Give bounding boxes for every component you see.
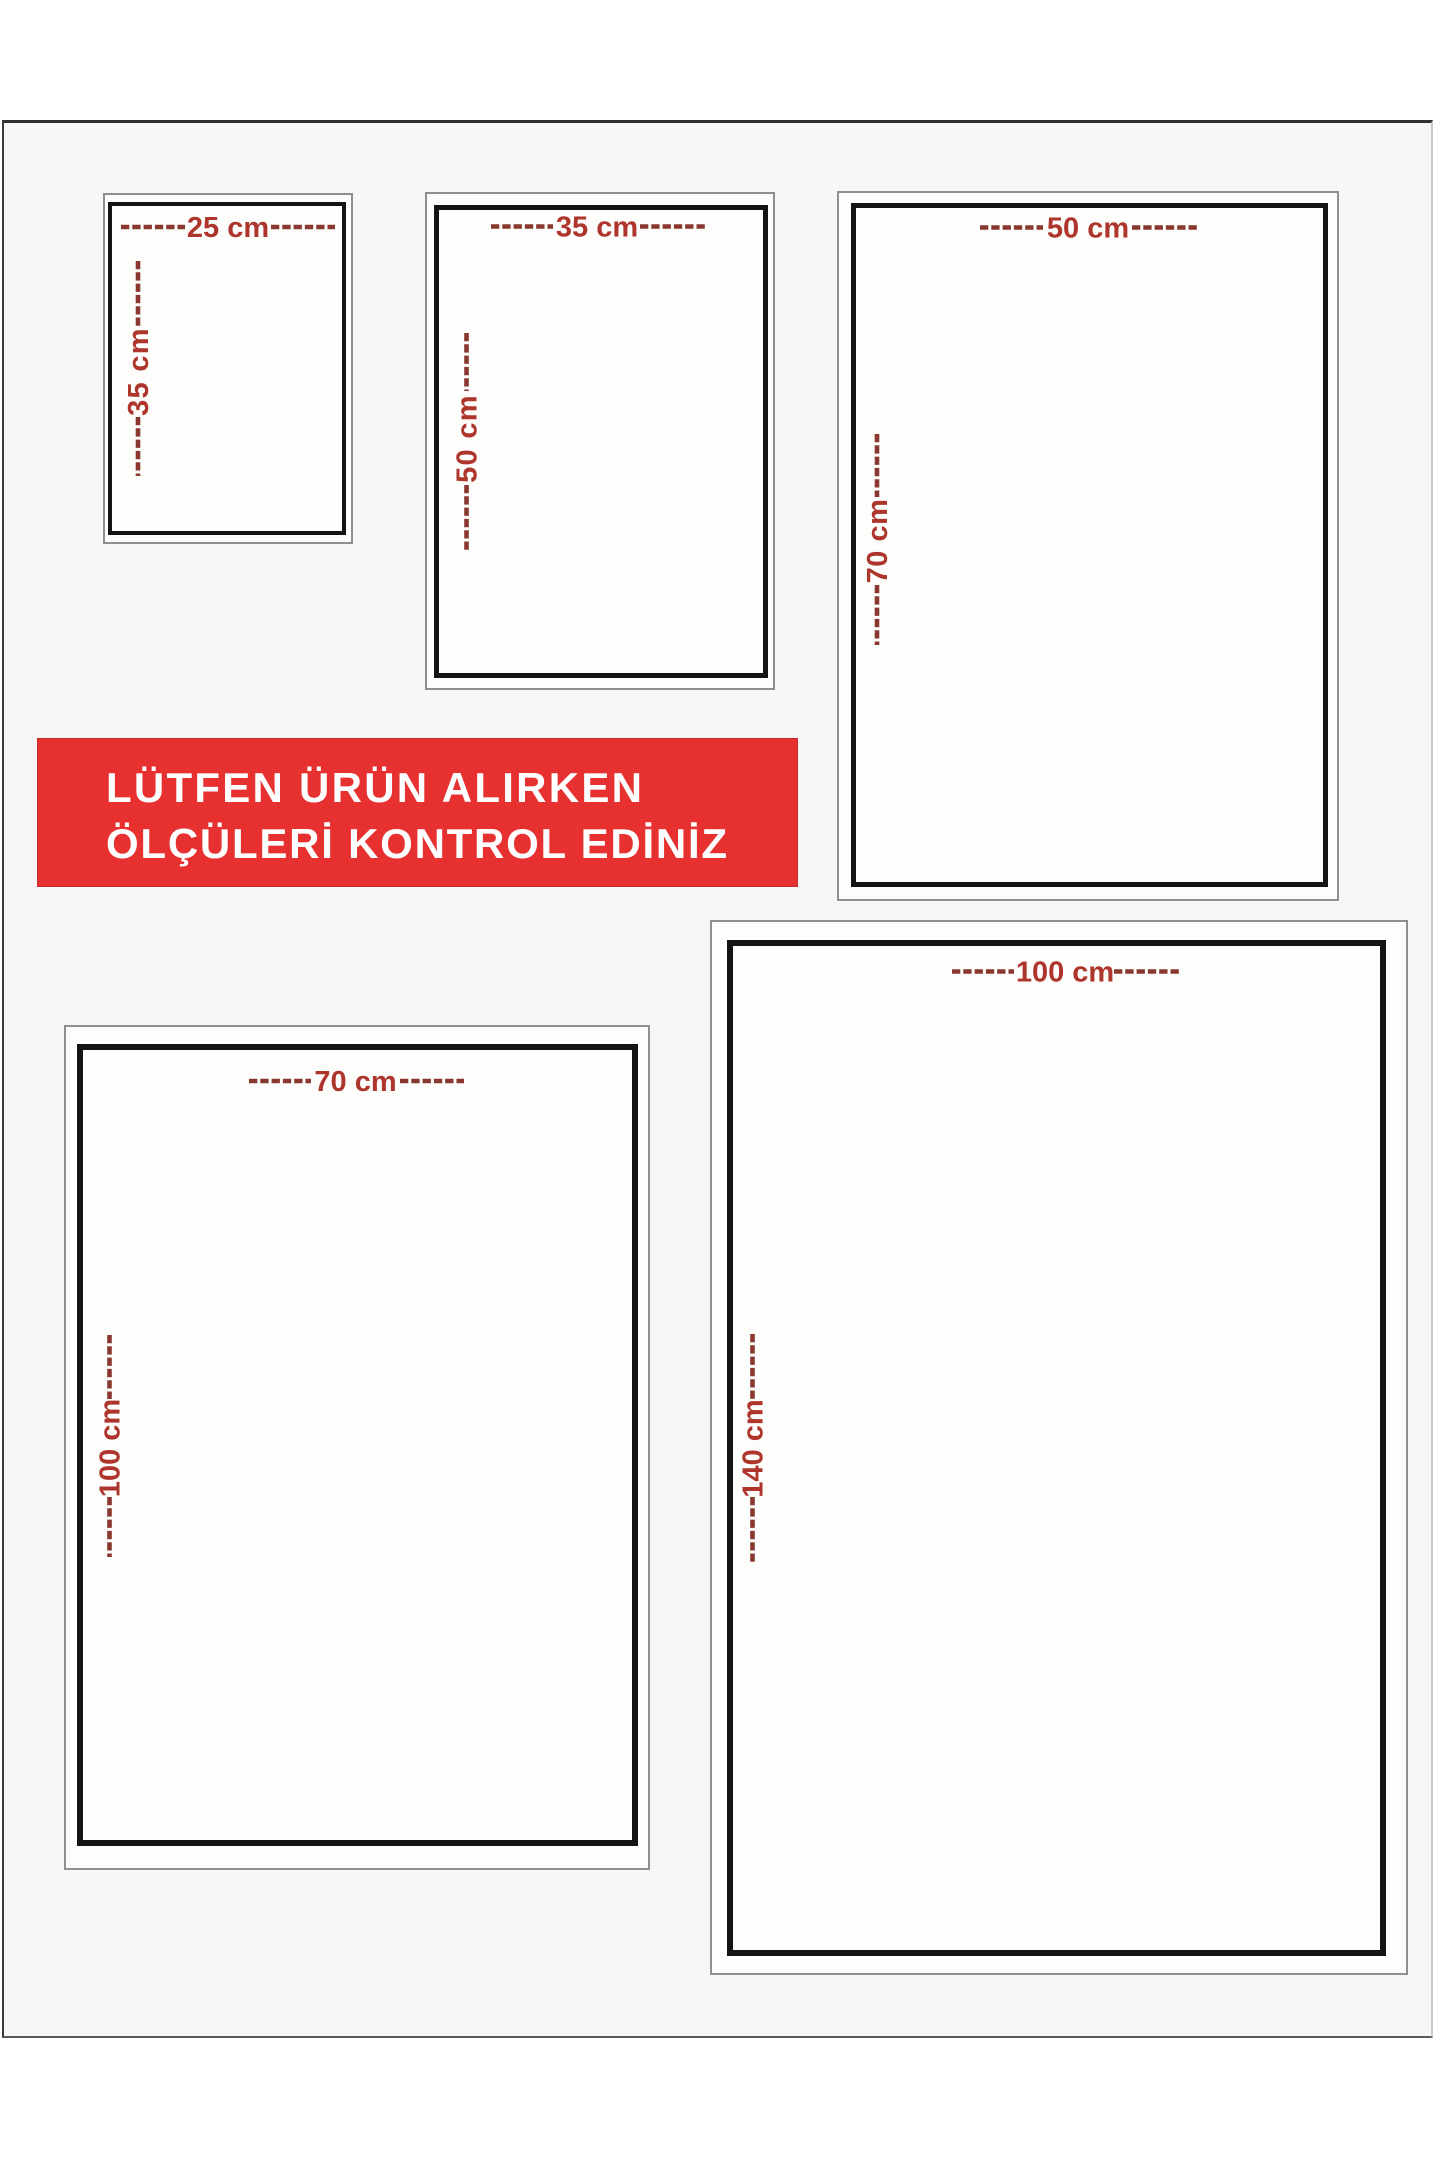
svg-text:35 cm: 35 cm bbox=[556, 212, 638, 244]
svg-text:140 cm: 140 cm bbox=[738, 1399, 770, 1497]
svg-text:25 cm: 25 cm bbox=[187, 212, 269, 244]
svg-text:70 cm: 70 cm bbox=[314, 1066, 396, 1098]
svg-text:50 cm: 50 cm bbox=[1047, 213, 1129, 245]
svg-text:100 cm: 100 cm bbox=[1016, 957, 1114, 989]
svg-text:100 cm: 100 cm bbox=[95, 1399, 127, 1497]
svg-text:50 cm: 50 cm bbox=[452, 394, 484, 483]
svg-text:70 cm: 70 cm bbox=[862, 499, 894, 584]
svg-text:35 cm: 35 cm bbox=[123, 327, 155, 416]
